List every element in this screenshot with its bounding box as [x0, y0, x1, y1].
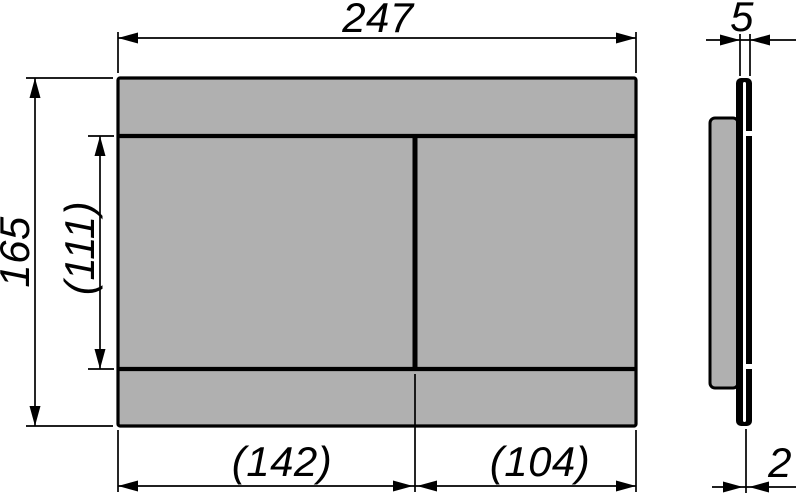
side-bottom-seam-notch: [745, 364, 753, 369]
dim-label-left-button-width: (142): [232, 438, 333, 485]
dim-label-total-width: 247: [341, 0, 415, 41]
dim-arrow: [118, 33, 138, 44]
front-view: [118, 78, 636, 426]
dim-arrow: [417, 481, 437, 492]
plate-face: [118, 78, 636, 426]
dim-label-right-button-width: (104): [490, 438, 591, 485]
dim-total-width: 247: [118, 0, 636, 73]
dim-label-total-height: 165: [0, 216, 38, 288]
dim-buttons-height: (111): [56, 136, 114, 369]
technical-drawing-canvas: 247 165 (111) (142) (104): [0, 0, 800, 495]
dim-arrow: [616, 33, 636, 44]
dim-arrow: [749, 482, 769, 493]
dim-arrow: [30, 406, 41, 426]
dim-arrow: [95, 136, 106, 156]
dim-arrow: [30, 78, 41, 98]
dim-label-plate-thickness: 5: [730, 0, 754, 40]
side-view: [710, 78, 753, 426]
dim-label-rim-thickness: 2: [767, 439, 792, 486]
dim-arrow: [118, 481, 138, 492]
dim-rim-thickness: 2: [712, 429, 796, 493]
dim-arrow: [723, 482, 743, 493]
dim-label-buttons-height: (111): [56, 201, 103, 295]
side-top-seam-notch: [745, 131, 753, 136]
dim-arrow: [95, 349, 106, 369]
side-back-frame: [710, 118, 738, 388]
dim-arrow: [616, 481, 636, 492]
dim-arrow: [393, 481, 413, 492]
dim-plate-thickness: 5: [706, 0, 796, 76]
